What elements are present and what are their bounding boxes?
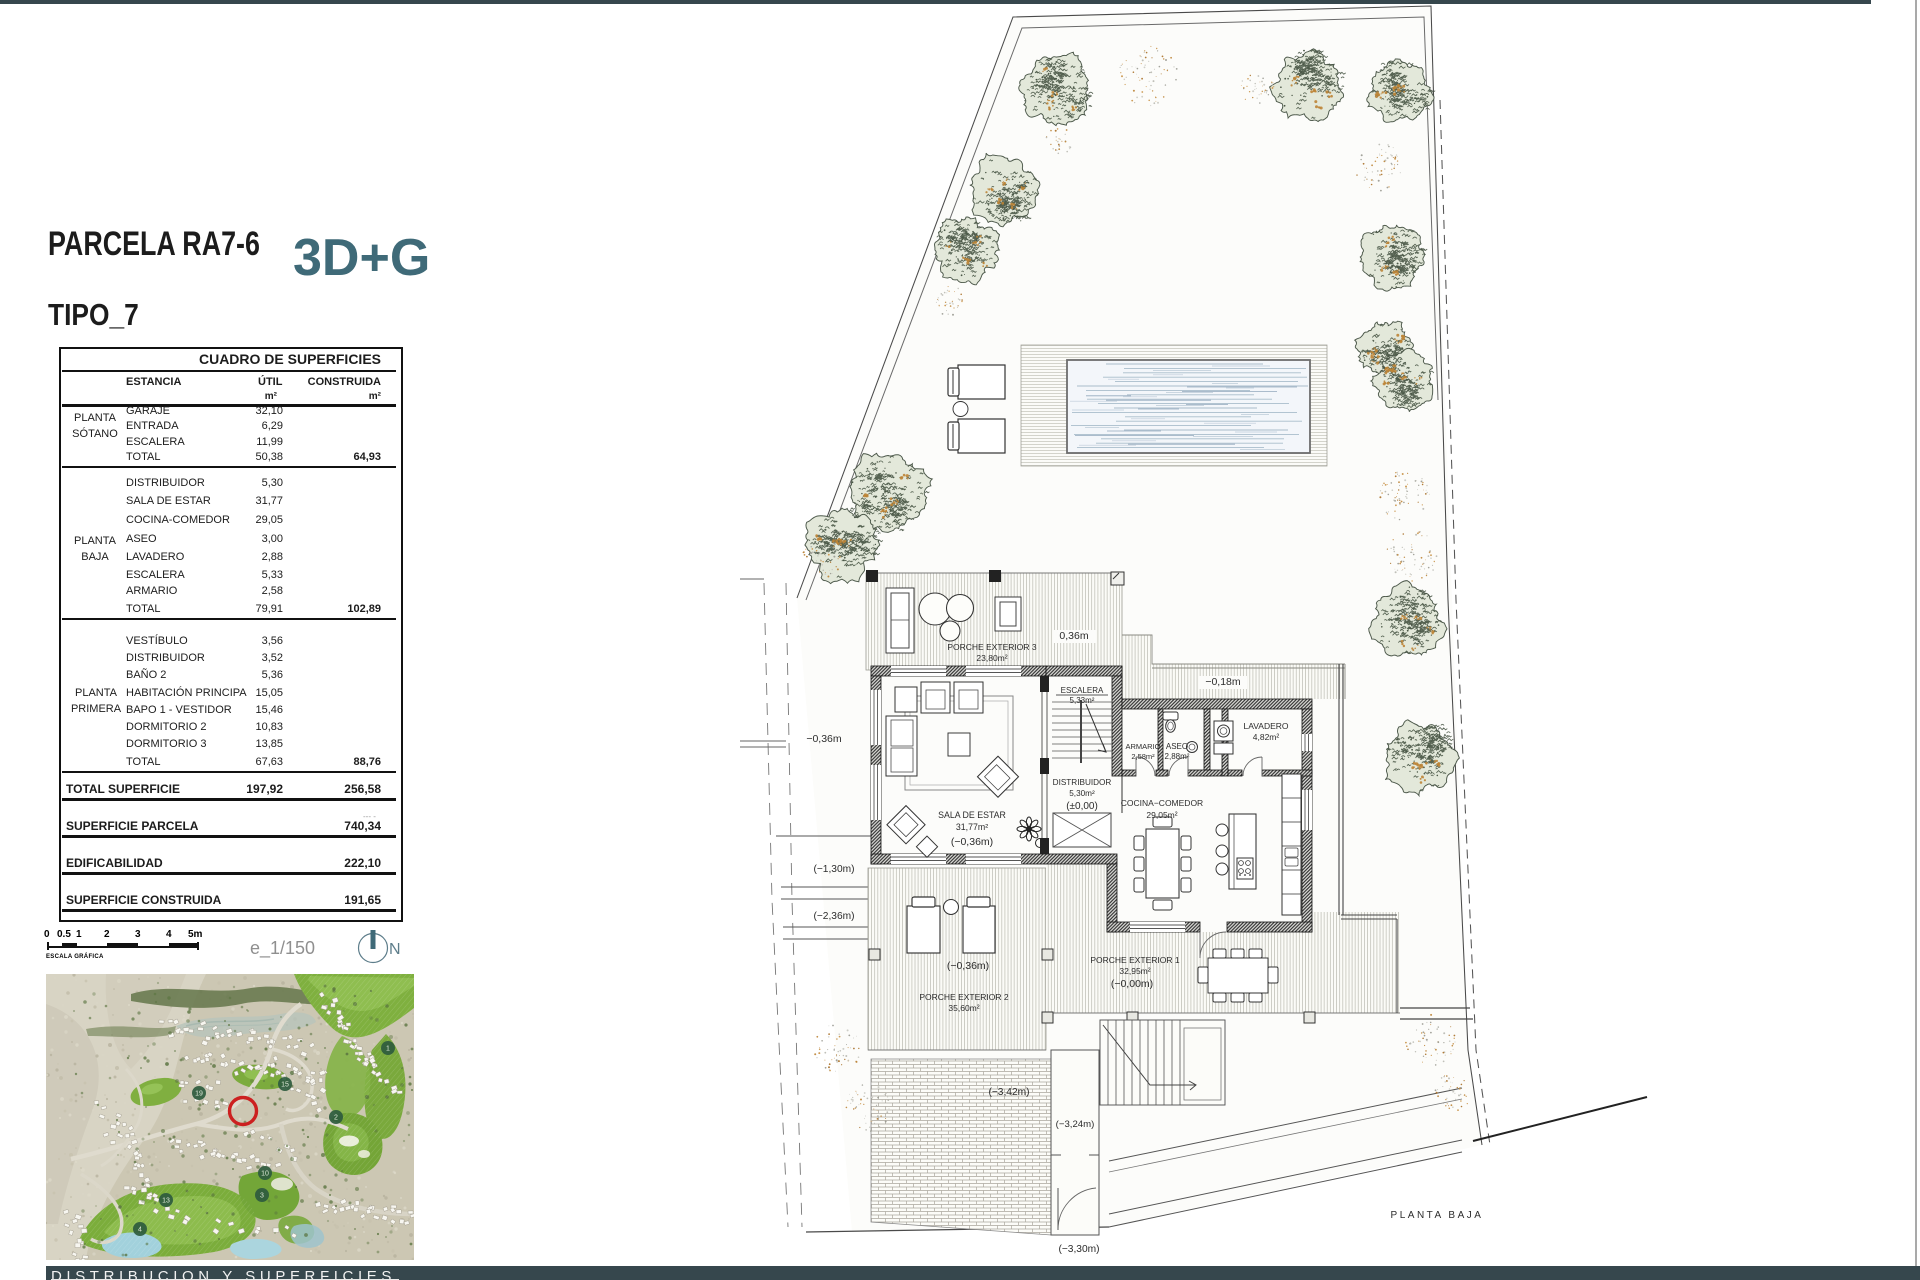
svg-text:ARMARIO: ARMARIO [1125,742,1160,751]
svg-text:5,33m²: 5,33m² [1070,696,1095,705]
svg-text:(−3,30m): (−3,30m) [1058,1244,1099,1255]
svg-text:23,80m²: 23,80m² [976,653,1007,663]
svg-text:5,30m²: 5,30m² [1069,789,1095,798]
svg-text:1: 1 [386,1046,390,1053]
svg-text:LAVADERO: LAVADERO [1243,721,1288,731]
svg-text:15: 15 [281,1082,289,1089]
svg-text:4,82m²: 4,82m² [1253,732,1280,742]
svg-text:(−0,00m): (−0,00m) [1111,978,1153,990]
svg-text:3: 3 [260,1193,264,1200]
svg-text:−0,18m: −0,18m [1205,676,1241,688]
svg-text:ASEO: ASEO [1166,742,1188,751]
svg-text:(−0,36m): (−0,36m) [947,960,989,972]
svg-text:31,77m²: 31,77m² [956,822,988,832]
svg-text:29,05m²: 29,05m² [1146,810,1177,820]
svg-text:PORCHE EXTERIOR 1: PORCHE EXTERIOR 1 [1090,955,1180,965]
svg-text:(−2,36m): (−2,36m) [813,911,854,922]
svg-text:(−3,24m): (−3,24m) [1056,1119,1095,1130]
svg-text:N: N [389,941,401,958]
svg-text:(−3,42m): (−3,42m) [988,1087,1029,1098]
svg-text:2,88m²: 2,88m² [1165,752,1190,761]
svg-text:4: 4 [138,1227,142,1234]
svg-text:DISTRIBUIDOR: DISTRIBUIDOR [1053,778,1112,787]
svg-text:13: 13 [162,1198,170,1205]
svg-text:−0,36m: −0,36m [806,733,842,745]
svg-text:PLANTA BAJA: PLANTA BAJA [1391,1210,1484,1221]
svg-text:10: 10 [261,1171,269,1178]
svg-text:(−0,36m): (−0,36m) [951,836,993,848]
svg-text:ESCALERA: ESCALERA [1061,686,1104,695]
svg-text:32,95m²: 32,95m² [1119,966,1150,976]
svg-text:2: 2 [334,1115,338,1122]
svg-text:0,36m: 0,36m [1059,630,1088,642]
svg-text:(−1,30m): (−1,30m) [813,864,854,875]
svg-text:COCINA−COMEDOR: COCINA−COMEDOR [1121,798,1203,808]
svg-text:PORCHE EXTERIOR 2: PORCHE EXTERIOR 2 [919,992,1009,1002]
svg-text:PORCHE EXTERIOR 3: PORCHE EXTERIOR 3 [947,642,1037,652]
svg-text:2,58m²: 2,58m² [1131,752,1155,761]
svg-text:19: 19 [195,1091,203,1098]
svg-text:(±0,00): (±0,00) [1066,801,1098,812]
svg-text:SALA DE ESTAR: SALA DE ESTAR [938,810,1006,820]
svg-text:35,60m²: 35,60m² [948,1003,979,1013]
